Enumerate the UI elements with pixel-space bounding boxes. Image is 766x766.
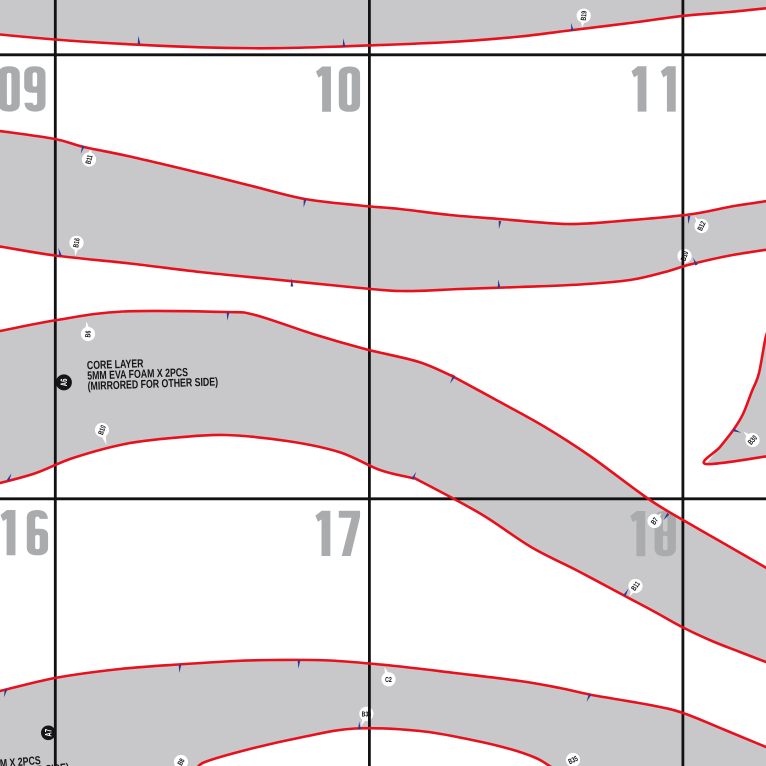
svg-text:A7: A7 bbox=[43, 728, 54, 736]
svg-text:A6: A6 bbox=[59, 378, 70, 386]
svg-text:B19: B19 bbox=[580, 10, 589, 21]
svg-text:B16: B16 bbox=[72, 237, 82, 248]
svg-text:C2: C2 bbox=[385, 676, 392, 684]
svg-text:B6: B6 bbox=[84, 330, 93, 338]
